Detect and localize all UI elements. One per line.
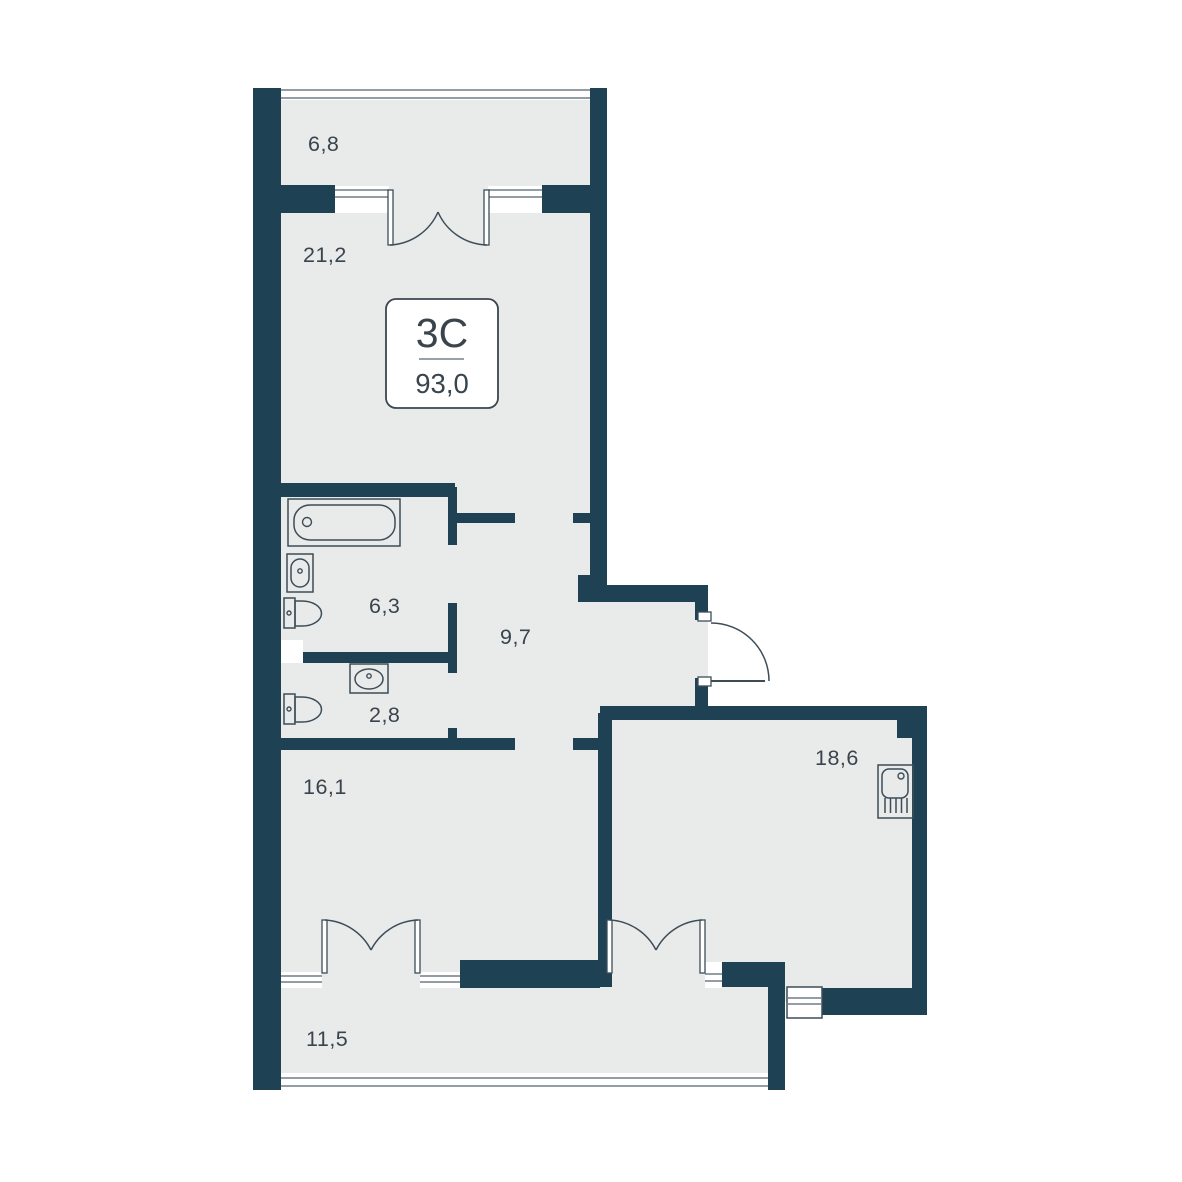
window-kitchen-exterior [787,987,822,1018]
wall-outer-right-upper [590,88,607,585]
room-label-balcony-top: 6,8 [308,132,339,156]
window-kitchen-balcony [705,962,722,988]
wall-entry-top [590,585,708,602]
door-swing-icon [711,623,769,681]
room-label-wc: 2,8 [369,703,400,727]
wall-kitchen-top [600,706,912,720]
room-label-balcony-bottom: 11,5 [306,1027,348,1051]
window-balcony-door-right [488,186,542,213]
door-leaf-icon [322,920,327,973]
wall-outer-left [253,88,281,1090]
balcony-glazing-bottom [281,1073,768,1090]
wall-kitchen-bottom [822,988,927,1015]
floor-kitchen [607,706,913,1002]
wall-balcony-divider-right [542,185,607,213]
door-leaf-icon [415,920,420,973]
window-bedroom-left [281,972,322,988]
wall-wc-bottom [281,738,515,750]
room-label-kitchen-living: 18,6 [815,746,859,770]
wall-hall-stub-left [455,513,515,523]
wall-bathroom-right-b [448,603,457,673]
floor-plan-svg: 6,8 21,2 6,3 9,7 2,8 16,1 18,6 11,5 3С 9… [0,0,1182,1182]
wall-bedroom-bottom [460,960,600,988]
floor-plan-page: 6,8 21,2 6,3 9,7 2,8 16,1 18,6 11,5 3С 9… [0,0,1182,1182]
badge-area-label: 93,0 [415,368,469,399]
wall-hall-stub-right [573,513,593,523]
plan-badge: 3С 93,0 [386,299,498,408]
entrance-door [698,612,769,686]
door-frame-icon [698,612,711,621]
door-leaf-icon [388,190,393,245]
door-leaf-icon [607,920,612,973]
vent-shaft [281,640,303,663]
window-bedroom-right [420,972,460,988]
room-label-bathroom: 6,3 [369,594,400,618]
door-leaf-icon [484,190,489,245]
window-balcony-door-left [335,186,389,213]
room-label-hallway: 9,7 [500,625,531,649]
wall-balcony-divider-left [253,185,335,213]
wall-bedroom-door-stub [573,738,598,750]
floor-entry-nook [593,602,708,717]
door-frame-icon [698,677,711,686]
room-label-bedroom: 16,1 [303,775,347,799]
room-label-living-room: 21,2 [303,243,347,267]
badge-type-label: 3С [416,310,468,356]
balcony-glazing-top [277,86,590,100]
wall-balcony-bottom-right [768,962,785,1090]
wall-bathroom-top [281,483,455,497]
floor-balcony-bottom [281,985,785,1080]
wall-kitchen-pilaster [897,720,912,738]
wall-bathroom-bottom [303,652,448,663]
wall-kitchen-right [912,706,927,1015]
door-leaf-icon [700,920,705,973]
